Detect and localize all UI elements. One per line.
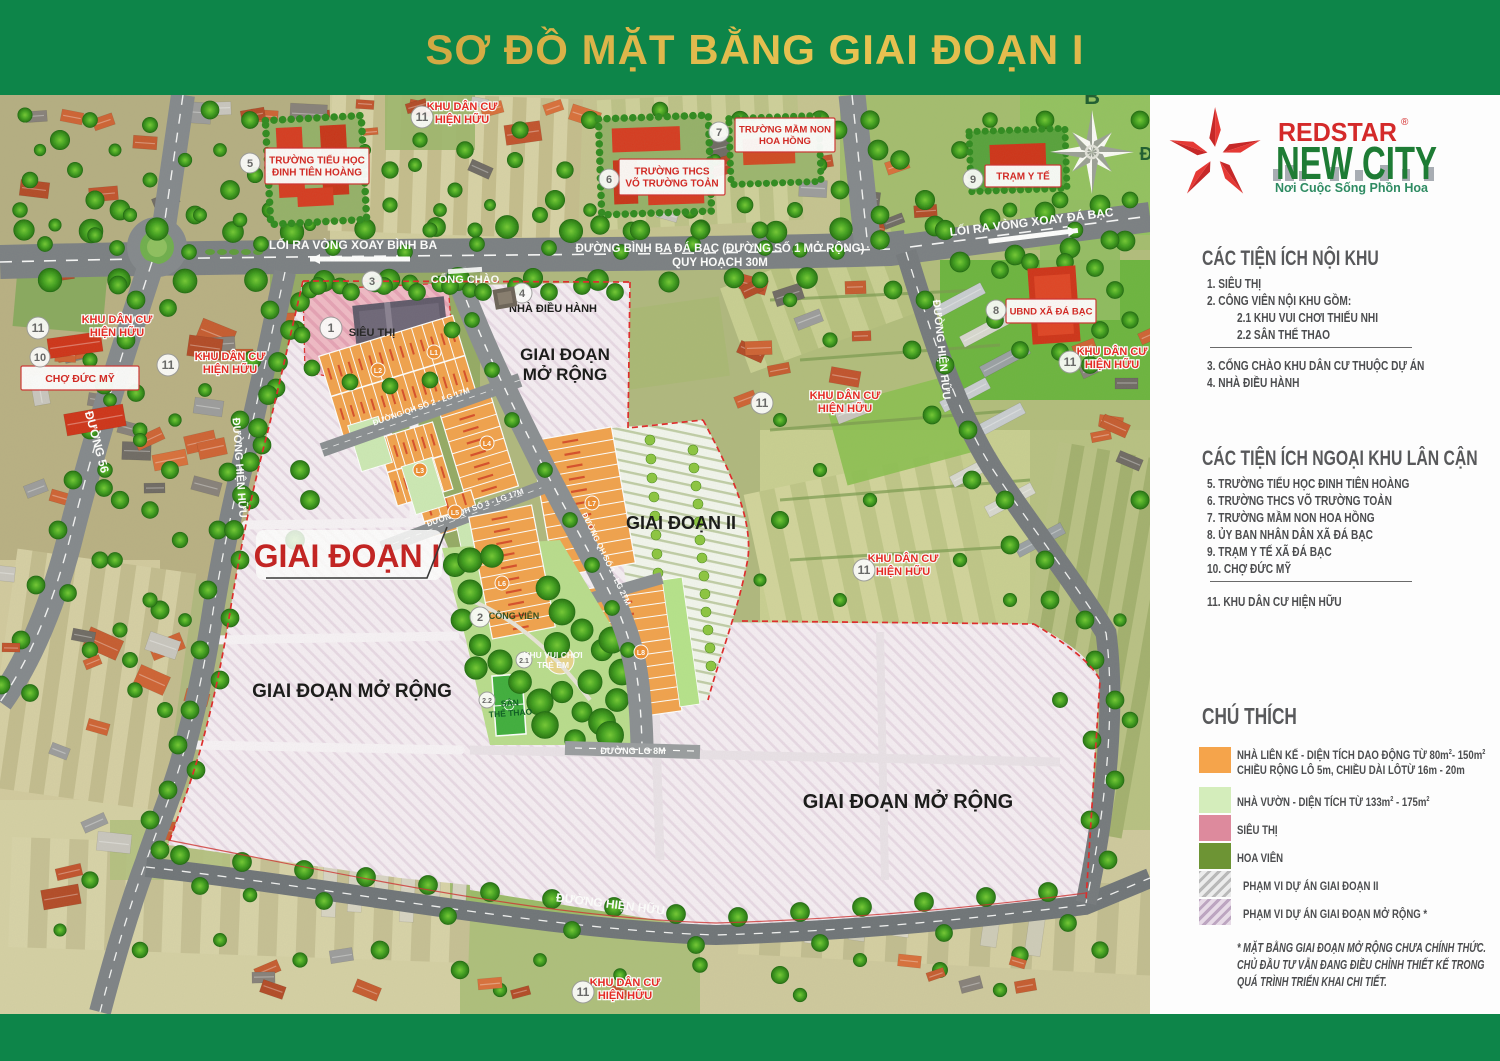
svg-text:Nơi Cuộc Sống Phồn Hoa: Nơi Cuộc Sống Phồn Hoa [1275, 180, 1429, 195]
svg-text:®: ® [1401, 117, 1409, 128]
